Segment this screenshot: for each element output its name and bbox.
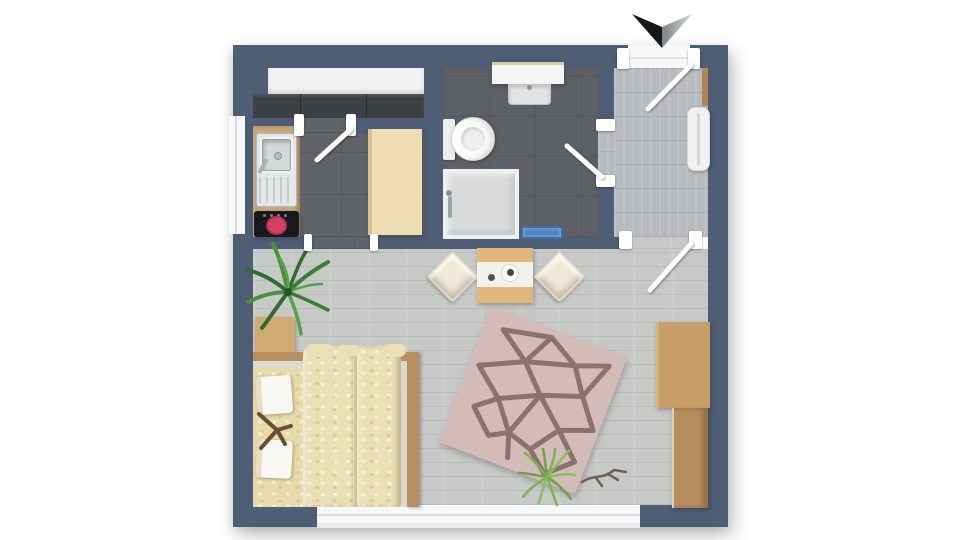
shower-head xyxy=(446,190,452,196)
kitchen-tall-cabinet xyxy=(368,129,422,235)
sink-faucet-knob xyxy=(274,152,282,160)
wall-top-left xyxy=(233,45,628,68)
white-counter-run xyxy=(268,68,424,94)
shower-enclosure xyxy=(443,169,519,239)
bottom-window-sill xyxy=(317,523,640,528)
left-wall-window xyxy=(229,116,245,234)
kitchen-strip-door-opening xyxy=(298,118,350,133)
vanity-counter xyxy=(492,62,564,84)
cooktop-knob xyxy=(284,214,287,217)
entrance-threshold xyxy=(628,45,690,68)
hallway-living-opening xyxy=(631,237,690,249)
bath-door-jamb-top xyxy=(596,119,615,131)
bath-mat xyxy=(521,226,563,239)
north-arrow-dark-half xyxy=(632,14,662,48)
coffee-cup xyxy=(507,269,514,276)
shower-fixture xyxy=(448,196,452,218)
dark-counter-run xyxy=(250,94,424,118)
bed-decor-twig xyxy=(255,410,295,452)
north-arrow xyxy=(632,14,692,48)
wall-corner-thick xyxy=(253,45,268,94)
north-arrow-light-half xyxy=(662,14,692,48)
bed-frame-right-rail xyxy=(407,352,419,507)
toilet-bowl-inner xyxy=(461,127,485,151)
entrance-jamb-left xyxy=(617,48,629,69)
strip-door-jamb-right xyxy=(346,114,356,136)
rug-decor-twig xyxy=(580,462,628,492)
bed-duvet-left xyxy=(303,346,359,507)
wall-kitchen-bath xyxy=(424,68,443,249)
bath-door-jamb-bottom xyxy=(596,175,615,187)
dark-counter-seam xyxy=(366,94,367,118)
duvet-fold-bump xyxy=(306,344,334,357)
cooktop-burner xyxy=(266,216,287,235)
strip-door-jamb-left xyxy=(294,114,304,136)
wall-bottom-right xyxy=(640,505,728,527)
table-decor-item xyxy=(488,274,495,281)
radiator-groove xyxy=(697,113,700,165)
hall-living-jamb-left xyxy=(619,231,632,249)
wall-bottom-left xyxy=(233,505,317,527)
hall-living-jamb-right xyxy=(689,231,702,249)
bed-duvet-right xyxy=(357,346,401,507)
entry-wood-strip xyxy=(702,68,708,106)
cooktop-knob xyxy=(263,214,266,217)
sink-drainboard xyxy=(259,177,294,203)
wall-right xyxy=(708,45,728,527)
kitchen-passage-jamb-right xyxy=(370,234,378,251)
kitchen-passage-jamb-left xyxy=(304,234,312,251)
entrance-jamb-right xyxy=(688,48,700,69)
wardrobe xyxy=(672,408,708,508)
grass-plant xyxy=(515,447,579,507)
palm-plant xyxy=(242,238,334,340)
desk xyxy=(656,322,710,408)
bottom-wall-window xyxy=(317,505,640,523)
duvet-fold-bump xyxy=(338,345,360,356)
vanity-faucet xyxy=(527,85,532,90)
duvet-fold-bump xyxy=(382,344,406,357)
floor-plan-canvas xyxy=(0,0,960,540)
bathroom-door-opening xyxy=(598,131,614,176)
